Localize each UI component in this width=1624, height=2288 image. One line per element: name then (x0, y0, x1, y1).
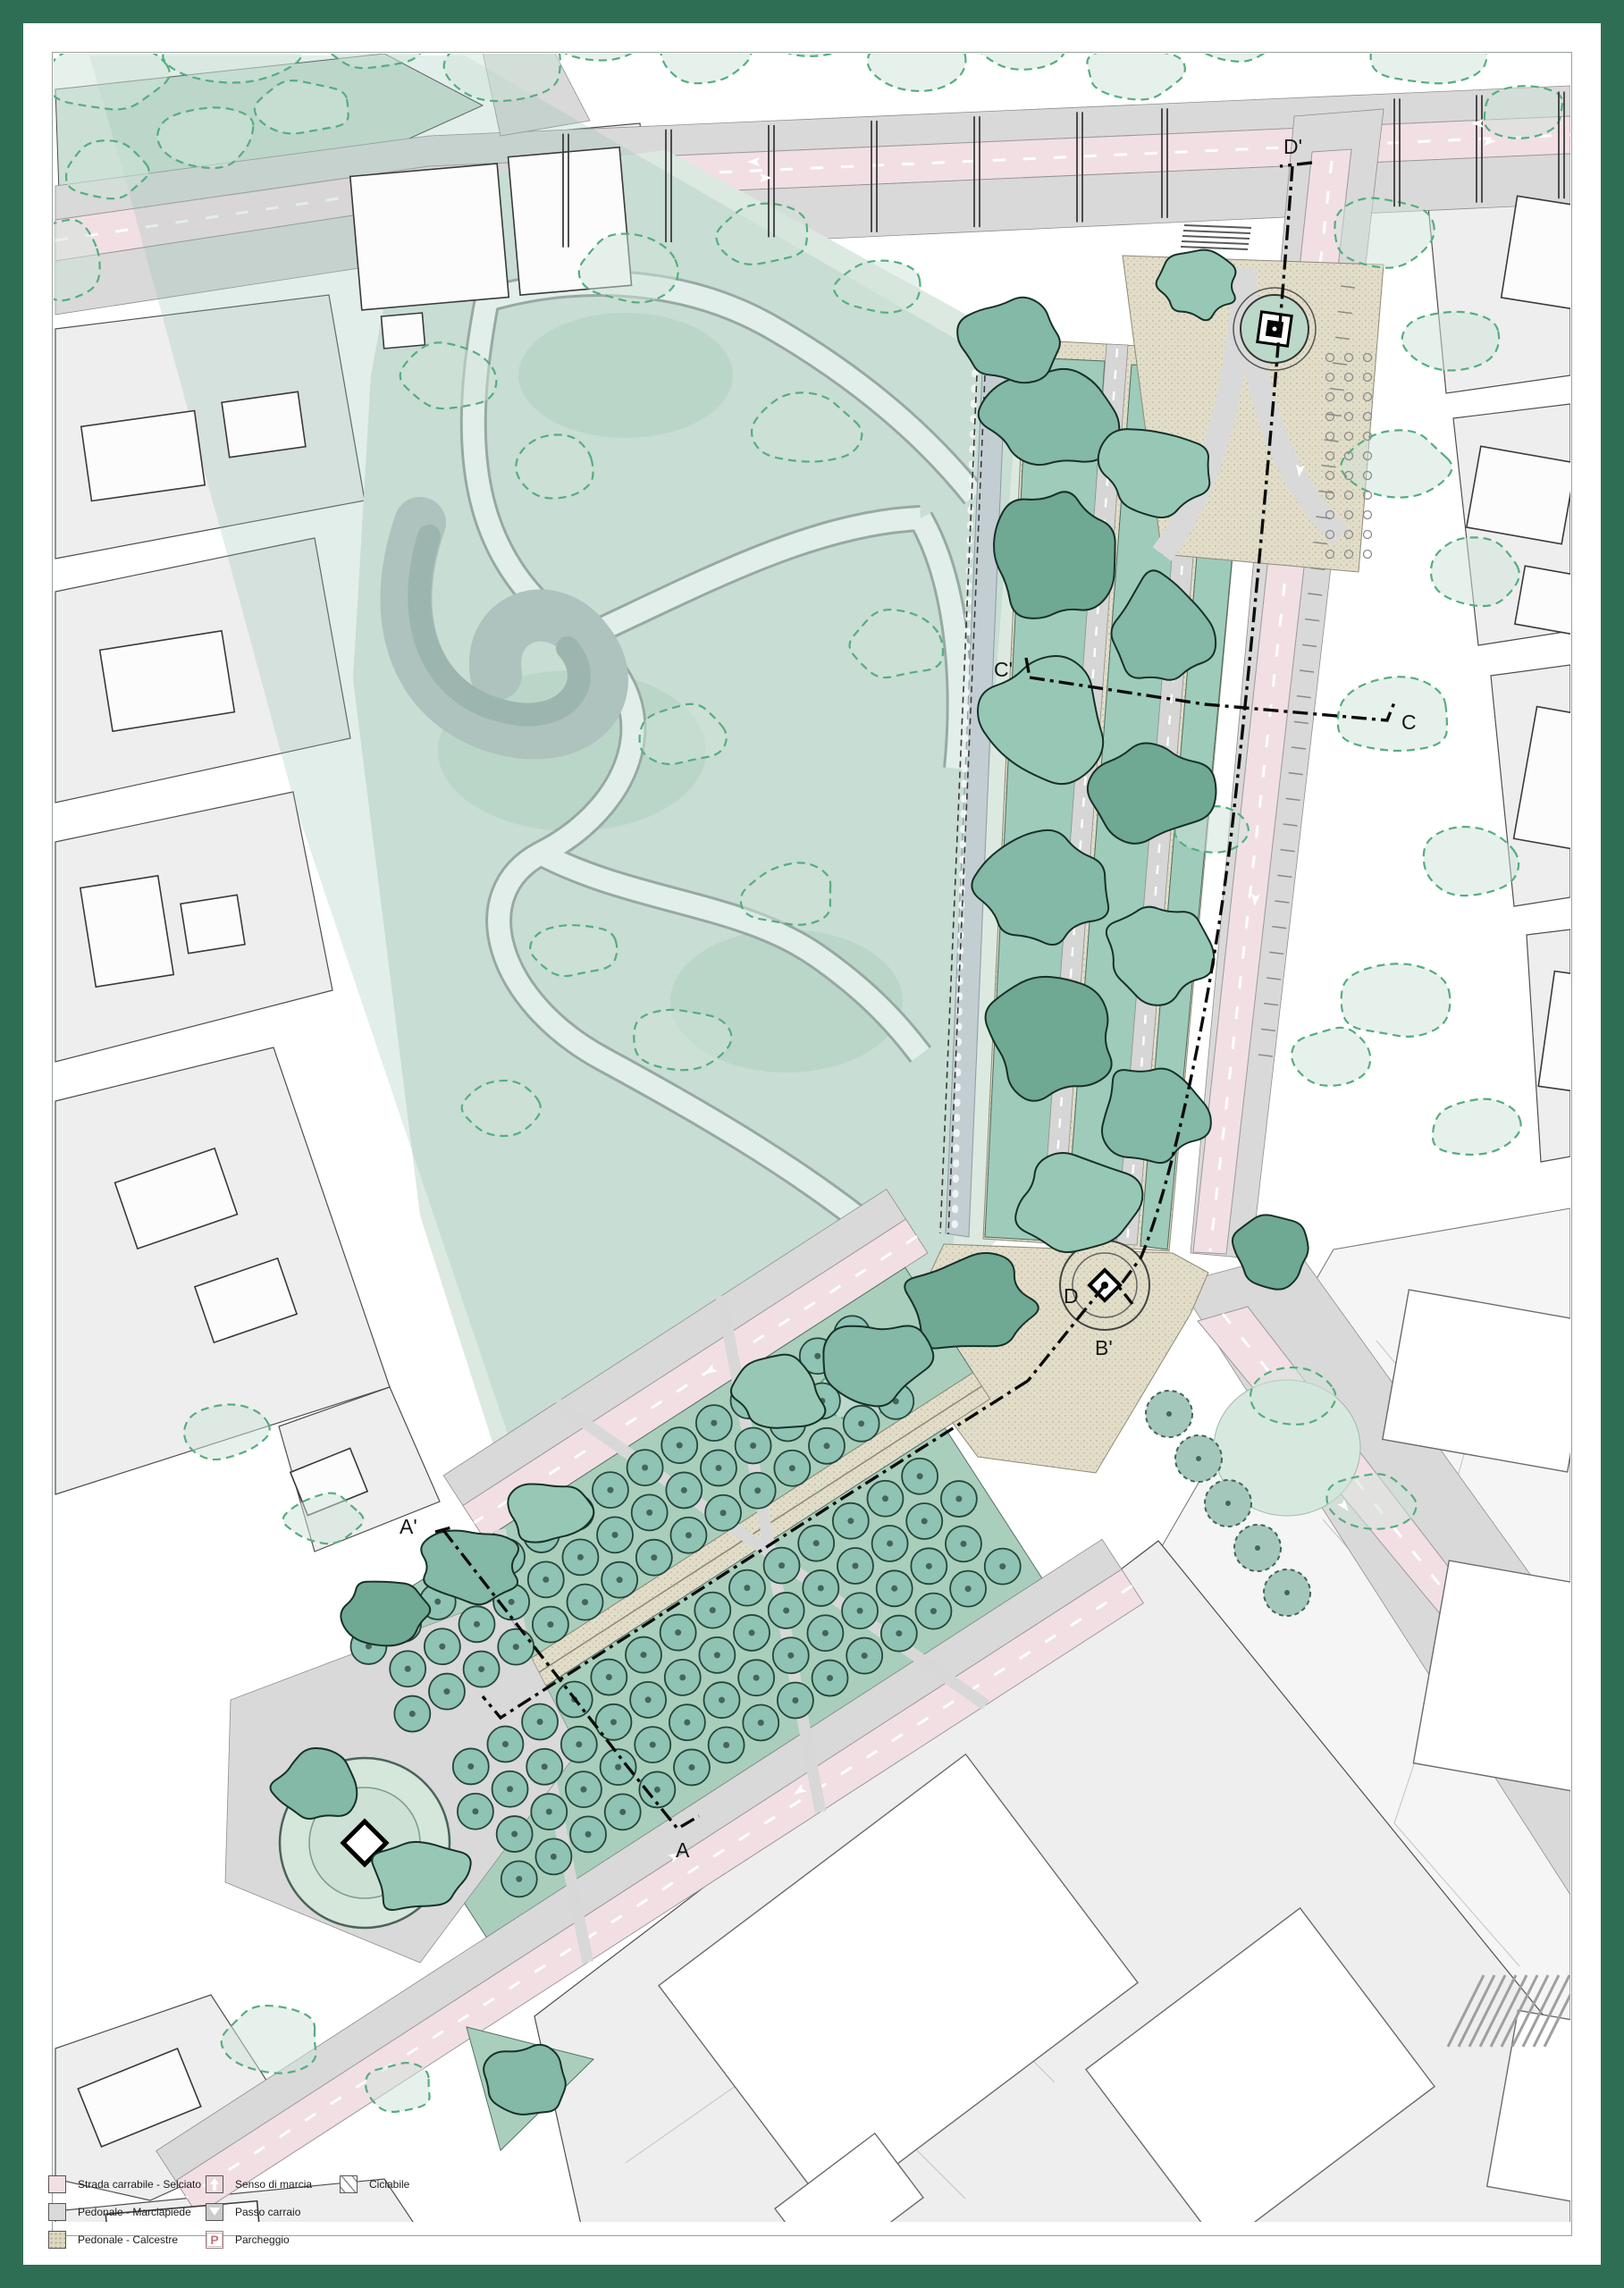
section-label-d-prime: D' (1283, 135, 1302, 158)
legend-item-marciapiede: Pedonale - Marciapiede (48, 2198, 206, 2225)
road-swatch (48, 2175, 66, 2193)
bike-lane-icon (340, 2175, 358, 2193)
calcestre-swatch (48, 2231, 66, 2249)
direction-arrow-icon (206, 2175, 223, 2193)
masterplan-page: D' C' C D B' A' A Strada carrabile - Sel… (0, 0, 1624, 2288)
section-label-c-prime: C' (994, 658, 1013, 681)
legend-item-ciclabile: Ciclabile (340, 2170, 474, 2198)
parking-icon: P (206, 2231, 223, 2249)
section-label-c: C (1401, 711, 1417, 734)
legend: Strada carrabile - Selciato Pedonale - M… (48, 2170, 474, 2253)
section-label-a: A (676, 1838, 690, 1862)
legend-item-strada-carrabile: Strada carrabile - Selciato (48, 2170, 206, 2198)
legend-item-parcheggio: P Parcheggio (206, 2225, 340, 2253)
masterplan-map: D' C' C D B' A' A (0, 0, 1624, 2288)
section-label-d: D (1064, 1284, 1079, 1308)
legend-item-passo-carraio: Passo carraio (206, 2198, 340, 2225)
section-label-a-prime: A' (400, 1515, 417, 1538)
north-monument-circle (1233, 288, 1316, 370)
section-label-b-prime: B' (1095, 1336, 1113, 1359)
legend-item-calcestre: Pedonale - Calcestre (48, 2225, 206, 2253)
sidewalk-swatch (48, 2203, 66, 2221)
legend-item-senso-di-marcia: Senso di marcia (206, 2170, 340, 2198)
driveway-triangle-icon (206, 2203, 223, 2221)
